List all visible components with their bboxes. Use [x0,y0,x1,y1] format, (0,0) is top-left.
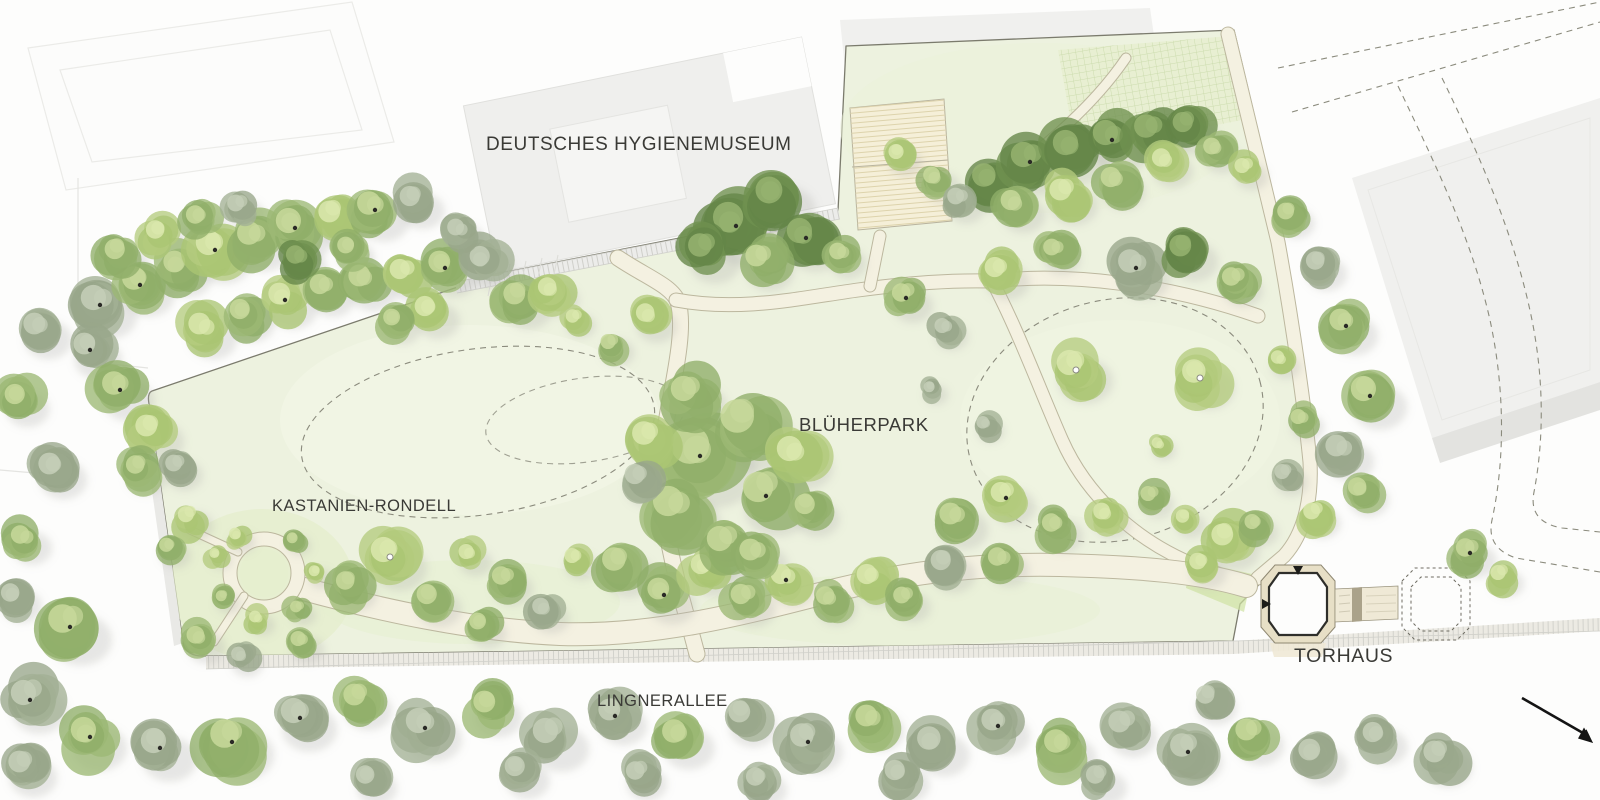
tree [1272,459,1304,491]
rondell-label: KASTANIEN-RONDELL [272,497,456,515]
allee-label: LINGNERALLEE [597,692,728,710]
park-label: BLÜHERPARK [799,414,929,435]
torhaus-label: TORHAUS [1294,645,1393,667]
tree [943,184,977,218]
museum-label: DEUTSCHES HYGIENEMUSEUM [486,134,792,155]
tree [393,172,434,223]
torhaus-building [1269,573,1327,635]
torhaus-connector [1335,586,1398,622]
site-plan: DEUTSCHES HYGIENEMUSEUM BLÜHERPARK KASTA… [0,0,1600,800]
site-plan-canvas: DEUTSCHES HYGIENEMUSEUM BLÜHERPARK KASTA… [0,0,1600,800]
